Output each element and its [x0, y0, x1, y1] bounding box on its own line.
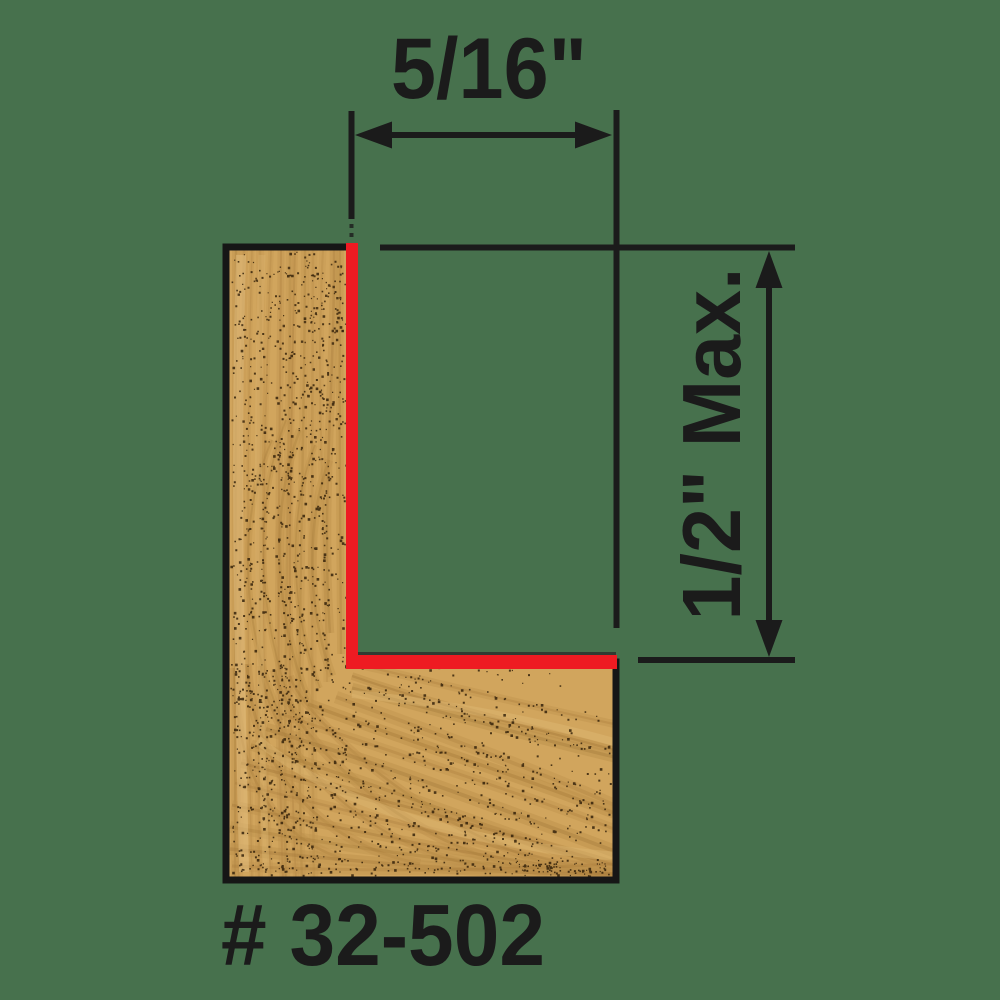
svg-text:1/2" Max.: 1/2" Max.: [665, 268, 758, 621]
svg-text:5/16": 5/16": [391, 21, 587, 117]
svg-text:# 32-502: # 32-502: [221, 887, 545, 984]
